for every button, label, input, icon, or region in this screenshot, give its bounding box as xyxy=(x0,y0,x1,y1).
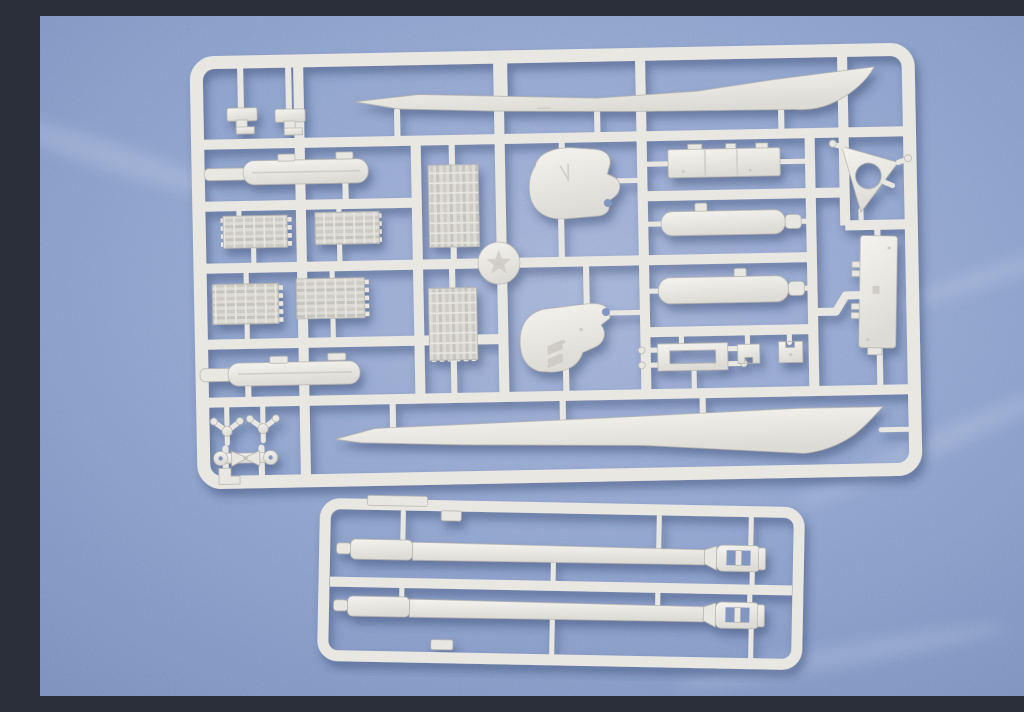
final-drive-housing-part xyxy=(529,147,621,220)
track-section-part xyxy=(315,211,380,244)
muzzle-brake xyxy=(715,602,764,629)
track-section-part xyxy=(296,278,367,319)
photo-canvas xyxy=(40,16,1024,696)
track-section-part xyxy=(223,215,290,248)
model-kit-sprue-photo: Two light-grey injection-moulded styrene… xyxy=(40,16,1024,696)
muzzle-brake xyxy=(716,545,765,572)
track-run-part xyxy=(428,164,480,247)
track-section-part xyxy=(212,283,281,324)
star-wheel-hub-part xyxy=(478,242,521,285)
track-run-part xyxy=(428,288,477,361)
